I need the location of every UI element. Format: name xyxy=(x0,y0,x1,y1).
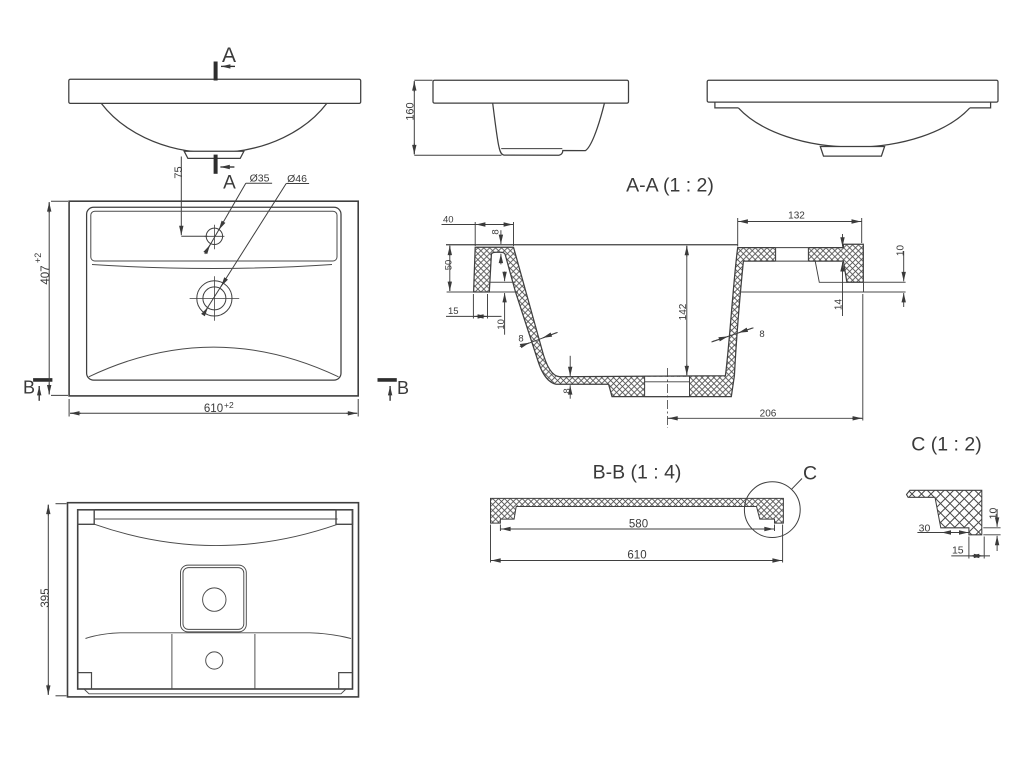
svg-text:A: A xyxy=(223,173,236,194)
svg-text:B: B xyxy=(23,378,35,398)
svg-text:580: 580 xyxy=(629,518,648,530)
svg-text:10: 10 xyxy=(896,245,907,257)
svg-text:610: 610 xyxy=(204,403,223,415)
svg-text:+2: +2 xyxy=(224,400,234,410)
svg-text:160: 160 xyxy=(405,102,417,120)
svg-text:B: B xyxy=(397,378,409,398)
svg-text:Ø46: Ø46 xyxy=(287,173,307,185)
svg-text:15: 15 xyxy=(448,306,459,317)
svg-text:B-B (1 : 4): B-B (1 : 4) xyxy=(593,462,682,484)
svg-text:8: 8 xyxy=(490,229,501,234)
svg-text:407: 407 xyxy=(40,265,52,284)
svg-text:10: 10 xyxy=(496,319,507,330)
svg-text:8: 8 xyxy=(518,334,523,345)
svg-text:206: 206 xyxy=(760,408,777,419)
svg-text:142: 142 xyxy=(678,303,689,320)
svg-text:395: 395 xyxy=(40,588,52,607)
svg-text:40: 40 xyxy=(443,215,454,226)
svg-text:A: A xyxy=(222,44,236,67)
svg-text:+2: +2 xyxy=(33,253,43,263)
svg-text:C: C xyxy=(803,463,817,485)
svg-text:C (1 : 2): C (1 : 2) xyxy=(911,434,981,456)
svg-text:10: 10 xyxy=(988,508,1000,520)
svg-text:A-A (1 : 2): A-A (1 : 2) xyxy=(626,174,714,196)
svg-text:15: 15 xyxy=(952,545,964,557)
svg-text:14: 14 xyxy=(834,299,845,311)
svg-text:132: 132 xyxy=(788,211,805,222)
svg-text:30: 30 xyxy=(919,523,931,535)
svg-text:8: 8 xyxy=(759,329,764,340)
svg-text:Ø35: Ø35 xyxy=(250,172,270,184)
svg-text:75: 75 xyxy=(173,166,185,178)
svg-text:50: 50 xyxy=(443,260,454,271)
svg-text:8: 8 xyxy=(562,388,573,393)
svg-text:610: 610 xyxy=(627,550,646,562)
